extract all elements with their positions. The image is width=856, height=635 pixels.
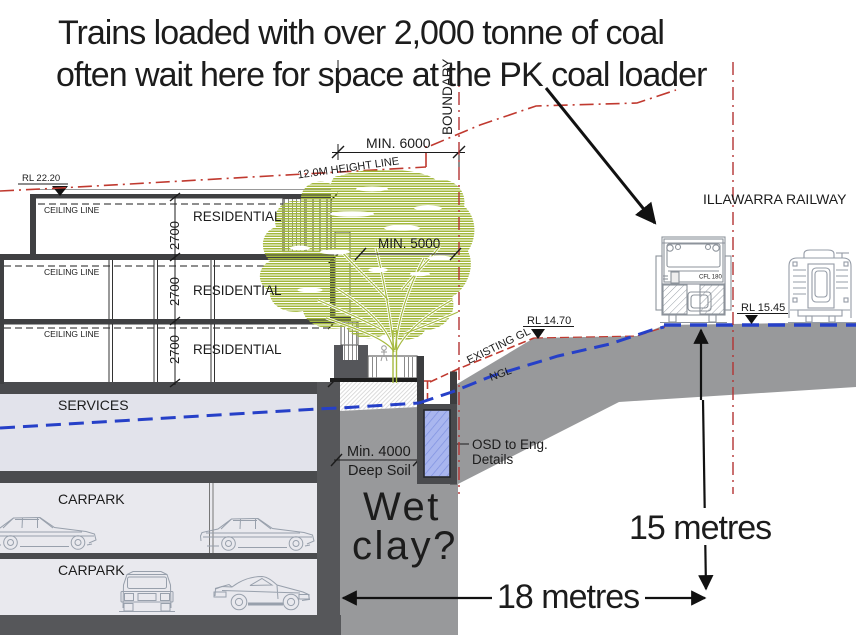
svg-text:18 metres: 18 metres bbox=[497, 578, 639, 616]
svg-text:Deep Soil: Deep Soil bbox=[348, 463, 411, 479]
svg-text:OSD to Eng.: OSD to Eng. bbox=[472, 437, 548, 452]
svg-text:CEILING LINE: CEILING LINE bbox=[44, 267, 100, 277]
svg-text:CFL 180: CFL 180 bbox=[699, 275, 722, 281]
svg-text:RL 22.20: RL 22.20 bbox=[22, 173, 60, 184]
svg-text:RL 15.45: RL 15.45 bbox=[741, 302, 785, 314]
svg-text:Min. 4000: Min. 4000 bbox=[347, 444, 411, 460]
svg-text:CEILING LINE: CEILING LINE bbox=[44, 329, 100, 339]
svg-text:CARPARK: CARPARK bbox=[58, 562, 125, 578]
svg-text:RESIDENTIAL: RESIDENTIAL bbox=[193, 342, 282, 357]
svg-text:CARPARK: CARPARK bbox=[58, 491, 125, 507]
svg-text:RESIDENTIAL: RESIDENTIAL bbox=[193, 283, 282, 298]
svg-text:2700: 2700 bbox=[167, 277, 182, 306]
svg-text:Trains loaded with over 2,000: Trains loaded with over 2,000 tonne of c… bbox=[58, 14, 664, 52]
svg-text:Details: Details bbox=[472, 452, 514, 467]
svg-text:CEILING LINE: CEILING LINE bbox=[44, 205, 100, 215]
svg-text:ILLAWARRA RAILWAY: ILLAWARRA RAILWAY bbox=[703, 191, 847, 207]
svg-text:clay?: clay? bbox=[352, 524, 458, 568]
svg-text:RL 14.70: RL 14.70 bbox=[527, 315, 571, 327]
svg-text:often wait here for space at t: often wait here for space at the PK coal… bbox=[56, 56, 707, 94]
svg-text:MIN. 6000: MIN. 6000 bbox=[366, 135, 431, 151]
svg-text:Wet: Wet bbox=[363, 485, 441, 529]
svg-text:SERVICES: SERVICES bbox=[58, 397, 129, 413]
svg-text:MIN. 5000: MIN. 5000 bbox=[378, 236, 440, 251]
svg-text:15 metres: 15 metres bbox=[629, 509, 771, 547]
svg-text:RESIDENTIAL: RESIDENTIAL bbox=[193, 209, 282, 224]
svg-text:2700: 2700 bbox=[167, 221, 182, 250]
svg-text:2700: 2700 bbox=[167, 335, 182, 364]
